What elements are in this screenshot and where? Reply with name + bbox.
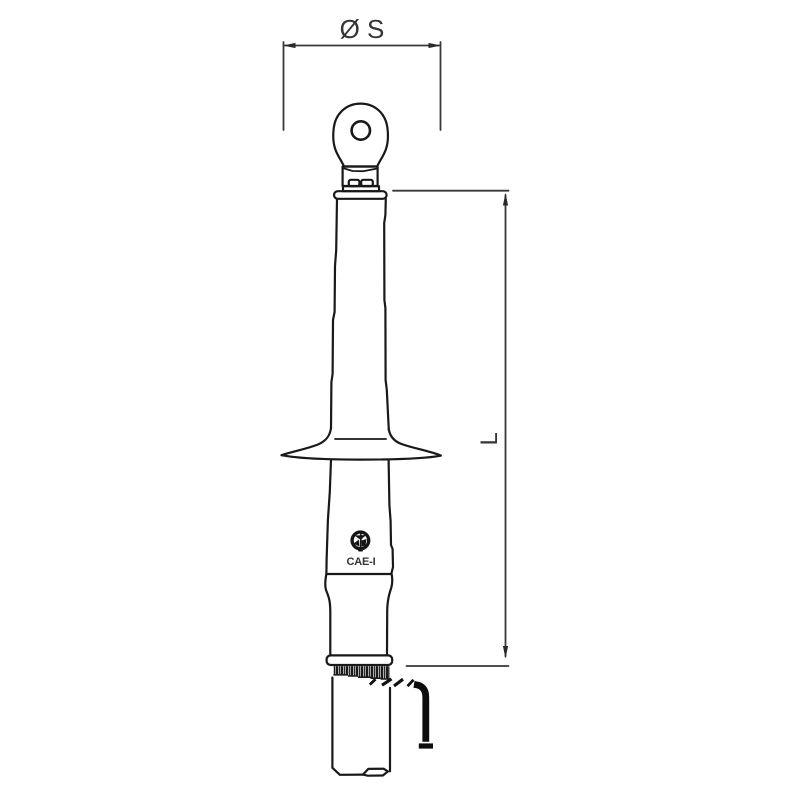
svg-text:CAE-I: CAE-I [347, 556, 376, 568]
svg-text:L: L [476, 432, 503, 445]
svg-text:Ø S: Ø S [340, 14, 385, 44]
